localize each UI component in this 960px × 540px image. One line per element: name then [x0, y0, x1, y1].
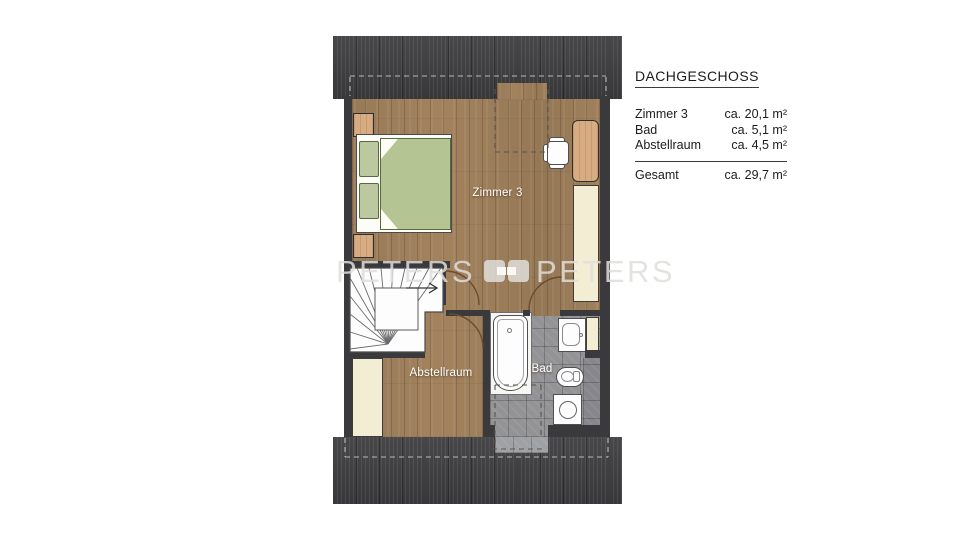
- legend-row-label: Abstellraum: [635, 138, 701, 154]
- legend-rows: Zimmer 3 ca. 20,1 m² Bad ca. 5,1 m² Abst…: [635, 107, 787, 154]
- bath-shelf-strip: [586, 317, 599, 352]
- legend-row-value: ca. 4,5 m²: [731, 138, 787, 154]
- washing-machine-drum: [559, 401, 577, 419]
- washing-machine: [553, 394, 582, 425]
- wall-bath-shelf-stub: [585, 350, 600, 358]
- toilet-cistern: [573, 371, 580, 382]
- legend-total-value: ca. 29,7 m²: [724, 168, 787, 184]
- legend-total-label: Gesamt: [635, 168, 679, 184]
- wall-hall-abstellraum: [446, 310, 483, 316]
- storage-strip-left: [352, 358, 383, 437]
- duvet-fold-top: [381, 139, 398, 159]
- wall-bad-bottom: [548, 425, 600, 437]
- sink-basin: [562, 323, 580, 346]
- room-label-abstellraum: Abstellraum: [401, 367, 481, 379]
- exterior-wall-right: [600, 96, 610, 437]
- dormer-floor-patch: [497, 83, 547, 100]
- room-label-bad: Bad: [522, 363, 562, 375]
- bathroom-tile-extension: [495, 437, 548, 453]
- wall-bad-bottom-left: [483, 425, 495, 437]
- wall-bad-top: [560, 310, 600, 316]
- desk-chair-seat: [547, 141, 569, 165]
- legend-title: DACHGESCHOSS: [635, 68, 759, 88]
- legend-row-label: Bad: [635, 123, 657, 139]
- sink-faucet: [579, 333, 583, 337]
- legend-row-label: Zimmer 3: [635, 107, 688, 123]
- legend-divider: [635, 161, 787, 162]
- bathtub-drain: [507, 328, 512, 333]
- roof-band-top: [333, 36, 622, 99]
- duvet-fold-bottom: [381, 209, 398, 229]
- nightstand-bottom: [353, 234, 374, 258]
- wall-bad-left: [483, 310, 490, 437]
- wall-stair-right: [440, 268, 446, 305]
- wall-above-stairs: [344, 261, 450, 268]
- roof-band-bottom: [333, 437, 622, 504]
- bathtub: [493, 315, 528, 391]
- wardrobe-strip-right: [573, 185, 599, 302]
- legend-row-value: ca. 5,1 m²: [731, 123, 787, 139]
- bed-duvet: [380, 138, 451, 230]
- legend-total-row: Gesamt ca. 29,7 m²: [635, 168, 787, 184]
- legend-row: Abstellraum ca. 4,5 m²: [635, 138, 787, 154]
- desk: [572, 120, 599, 182]
- wall-stair-inner: [418, 312, 425, 352]
- floor-plan-page: Zimmer 3 Abstellraum Bad PETERS PETERS D…: [0, 0, 960, 540]
- legend-row: Bad ca. 5,1 m²: [635, 123, 787, 139]
- bed-pillow-top: [359, 141, 379, 177]
- sink: [558, 318, 586, 352]
- bed-pillow-bottom: [359, 183, 379, 219]
- room-label-zimmer3: Zimmer 3: [450, 187, 545, 199]
- wall-bad-stub: [523, 310, 530, 316]
- legend: DACHGESCHOSS Zimmer 3 ca. 20,1 m² Bad ca…: [635, 68, 787, 183]
- legend-row-value: ca. 20,1 m²: [724, 107, 787, 123]
- legend-row: Zimmer 3 ca. 20,1 m²: [635, 107, 787, 123]
- wall-below-stairs: [344, 350, 425, 358]
